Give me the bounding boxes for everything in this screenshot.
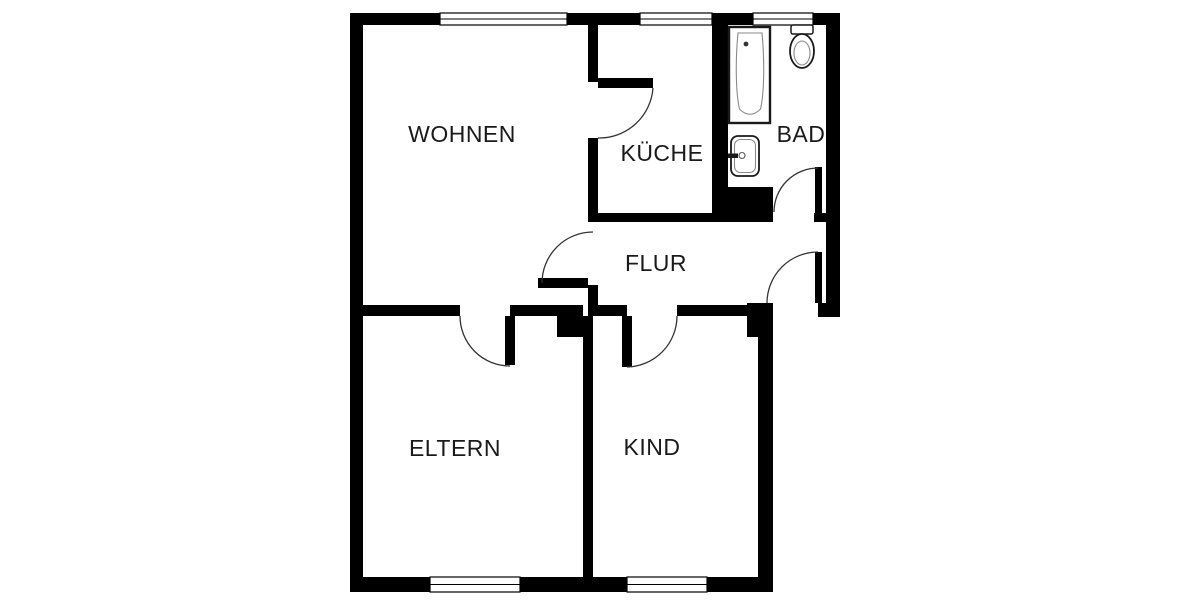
wall-bottom [350,577,773,592]
sink-faucet [728,154,738,159]
wall-mid-pillar [557,305,583,337]
room-label-eltern: ELTERN [409,435,501,461]
plan-background [0,0,1200,600]
wall-entrance-jamb [818,303,840,317]
wall-left [350,13,363,592]
wall-flur-top [598,213,712,222]
sink-icon [728,136,759,176]
room-label-bad: BAD [777,121,826,147]
wall-mid-b [510,305,557,316]
door-leaf-kueche [598,78,653,88]
door-leaf-bad [815,167,822,213]
door-leaf-wohnen [538,278,588,288]
bathtub-drain [744,42,749,47]
room-label-wohnen: WOHNEN [408,121,516,147]
room-label-kueche: KÜCHE [620,140,703,166]
window-bad [753,13,813,25]
toilet-icon [790,25,814,68]
wall-wohnen-kueche-b [588,138,598,222]
window-kueche [640,13,712,25]
wall-mid-c [593,305,627,316]
wall-eltern-kind [583,316,593,577]
wall-kind-right-corner-block [747,303,773,337]
wall-mid-d [677,305,747,316]
floor-plan: WOHNEN KÜCHE BAD FLUR ELTERN KIND [0,0,1200,600]
room-label-flur: FLUR [625,250,687,276]
wall-mid-a [363,305,460,316]
door-leaf-eltern [505,316,515,365]
window-kind [627,577,707,592]
wall-kind-right [758,313,773,577]
door-leaf-entrance [815,252,822,303]
wall-bad-duct-block [712,187,773,222]
floor-plan-page: WOHNEN KÜCHE BAD FLUR ELTERN KIND [0,0,1200,600]
wall-right-upper [826,13,840,317]
wall-bad-door-jamb [814,213,826,222]
room-label-kind: KIND [624,434,681,460]
door-leaf-kind [622,316,632,367]
wall-kueche-bad [712,25,728,213]
wall-wohnen-kueche-a [588,25,598,82]
window-eltern [430,577,520,592]
bathtub-icon [729,27,770,123]
window-wohnen [440,13,567,25]
